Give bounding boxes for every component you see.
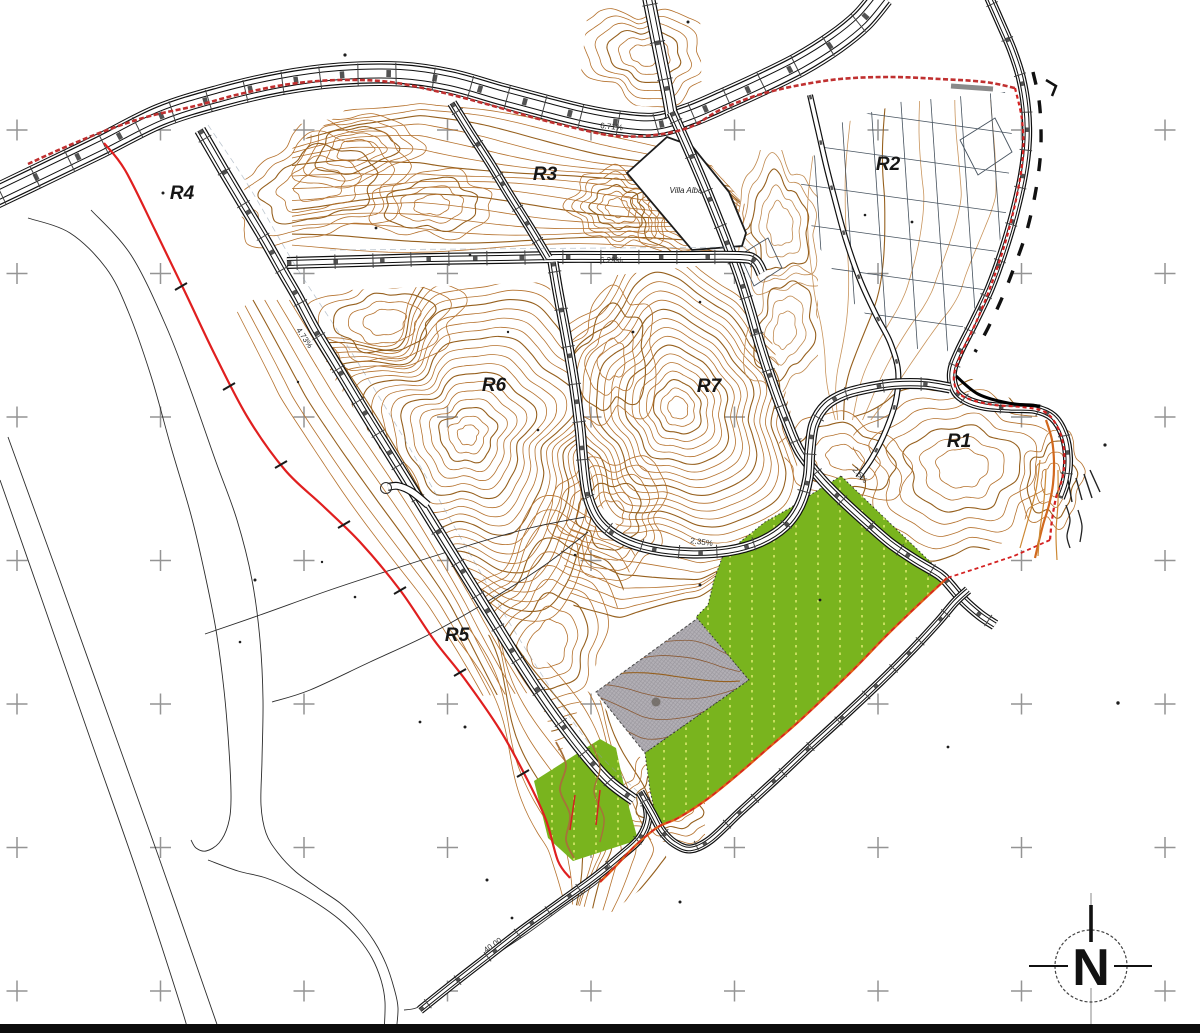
svg-text:Villa Alba: Villa Alba xyxy=(670,186,703,195)
svg-text:R1: R1 xyxy=(947,431,971,452)
svg-text:R7: R7 xyxy=(697,376,723,397)
svg-text:R4: R4 xyxy=(170,183,195,204)
svg-text:R6: R6 xyxy=(482,375,507,396)
svg-text:R3: R3 xyxy=(533,164,558,185)
svg-text:R2: R2 xyxy=(876,154,901,175)
svg-text:6.29%: 6.29% xyxy=(600,256,623,265)
svg-text:N: N xyxy=(1072,939,1110,997)
svg-text:R5: R5 xyxy=(445,625,470,646)
